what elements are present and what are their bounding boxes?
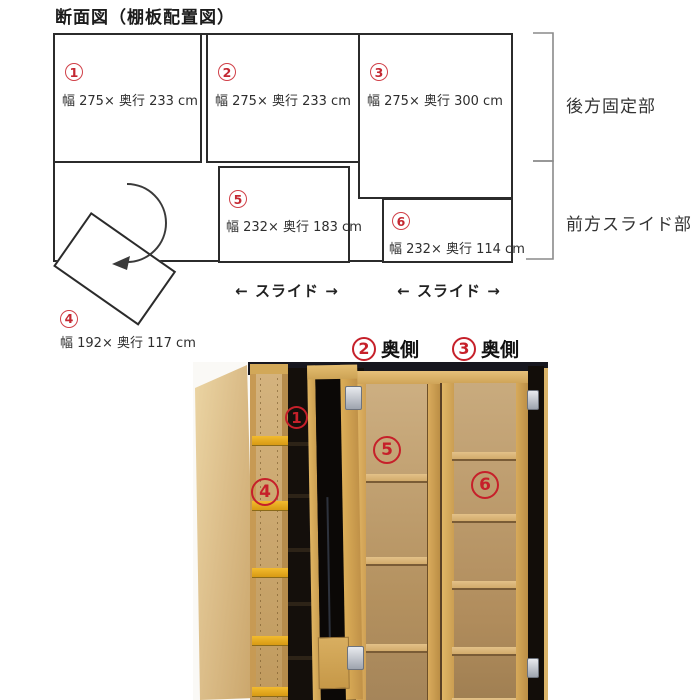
compartment-5-top-rail — [356, 371, 440, 384]
dimension-label-1: 幅 275× 奥行 233 cm — [62, 90, 198, 109]
left-open-door — [193, 362, 257, 700]
shelf-board — [366, 474, 427, 483]
circled-number-1: 1 — [65, 63, 83, 81]
shelf-box-5: 5 幅 232× 奥行 183 cm — [218, 166, 350, 263]
compartment-5 — [356, 371, 440, 700]
compartment-6 — [440, 371, 528, 700]
dimension-label-4: 幅 192× 奥行 117 cm — [60, 332, 196, 351]
hinge-icon — [527, 658, 539, 678]
circled-number-4: 4 — [60, 310, 78, 328]
shelf-box-2: 2 幅 275× 奥行 233 cm — [206, 33, 360, 163]
door-shelf-column-4 — [250, 364, 288, 700]
shelf-board — [452, 647, 516, 656]
circled-number-6: 6 — [392, 212, 410, 230]
compartment-6-top-rail — [440, 371, 528, 383]
dimension-label-5: 幅 232× 奥行 183 cm — [226, 216, 362, 235]
front-section-bracket — [526, 161, 553, 259]
product-diagram-image: 断面図（棚板配置図） 1 幅 275× 奥行 233 cm 2 幅 275× 奥… — [0, 0, 700, 700]
shelf-board — [452, 581, 516, 590]
dimension-label-2: 幅 275× 奥行 233 cm — [215, 90, 351, 109]
dimension-label-6: 幅 232× 奥行 114 cm — [389, 238, 525, 257]
glass-reflection — [326, 497, 331, 657]
hinge-icon — [347, 646, 364, 670]
photo-marker-1: 1 — [285, 406, 308, 429]
okugawa-text-2: 奥側 — [381, 335, 419, 362]
shelf-box-3: 3 幅 275× 奥行 300 cm — [358, 33, 513, 199]
shelf-board — [366, 557, 427, 566]
okugawa-text-3: 奥側 — [481, 335, 519, 362]
box-4-label-group: 4 幅 192× 奥行 117 cm — [60, 308, 196, 351]
shelf-board — [366, 644, 427, 653]
door-column-top — [250, 364, 288, 374]
photo-label-3-okugawa: 3 奥側 — [452, 335, 519, 362]
glass-door-top-rail — [307, 365, 357, 380]
dimension-label-3: 幅 275× 奥行 300 cm — [367, 90, 503, 109]
rear-fixed-section-label: 後方固定部 — [566, 92, 656, 117]
circled-number-3-photo: 3 — [452, 337, 476, 361]
yellow-shelf-board — [252, 636, 288, 646]
door-column-back — [256, 372, 282, 700]
glass-door-mid-panel — [318, 637, 350, 690]
circled-number-2: 2 — [218, 63, 236, 81]
shelf-board — [452, 452, 516, 461]
photo-marker-4: 4 — [251, 478, 279, 506]
compartment-5-right-stile — [427, 375, 441, 700]
circled-number-2-photo: 2 — [352, 337, 376, 361]
circled-number-5: 5 — [229, 190, 247, 208]
yellow-shelf-board — [252, 568, 288, 578]
right-door-sliver — [544, 368, 548, 700]
slide-arrows-label-right: ← スライド → — [384, 280, 514, 301]
shelf-box-6: 6 幅 232× 奥行 114 cm — [382, 198, 513, 263]
cabinet-photo: 1 4 5 6 — [193, 362, 548, 700]
page-title: 断面図（棚板配置図） — [55, 3, 235, 28]
circled-number-3: 3 — [370, 63, 388, 81]
shelf-pin-holes — [260, 372, 261, 700]
photo-marker-6: 6 — [471, 471, 499, 499]
photo-label-2-okugawa: 2 奥側 — [352, 335, 419, 362]
slide-arrows-label-left: ← スライド → — [222, 280, 352, 301]
right-dark-edge — [528, 366, 544, 700]
hinge-icon — [345, 386, 362, 410]
front-slide-section-label: 前方スライド部 — [566, 210, 692, 235]
rear-section-bracket — [533, 33, 553, 161]
yellow-shelf-board — [252, 436, 288, 446]
hinge-icon — [527, 390, 539, 410]
door-column-left-edge — [250, 364, 256, 700]
compartment-6-right-stile — [516, 373, 528, 700]
photo-marker-5: 5 — [373, 436, 401, 464]
shelf-box-1: 1 幅 275× 奥行 233 cm — [53, 33, 202, 163]
yellow-shelf-board — [252, 687, 288, 697]
shelf-pin-holes — [277, 372, 278, 700]
shelf-board — [452, 514, 516, 523]
